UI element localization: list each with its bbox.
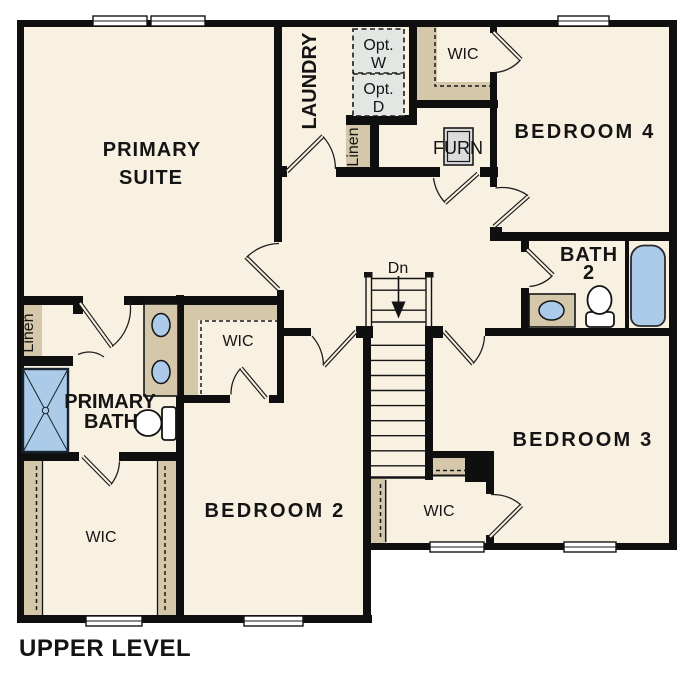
svg-text:WIC: WIC [85,529,116,546]
svg-text:LAUNDRY: LAUNDRY [299,32,321,130]
svg-text:BEDROOM 4: BEDROOM 4 [515,121,656,143]
svg-text:WIC: WIC [222,333,253,350]
svg-text:PRIMARY: PRIMARY [103,139,201,161]
svg-text:WIC: WIC [447,46,478,63]
svg-text:D: D [373,99,385,116]
svg-text:Dn: Dn [388,260,408,277]
svg-text:Linen: Linen [20,313,37,352]
svg-text:BEDROOM 3: BEDROOM 3 [513,429,654,451]
svg-text:SUITE: SUITE [119,167,183,189]
svg-text:UPPER LEVEL: UPPER LEVEL [19,635,191,662]
svg-text:Linen: Linen [345,127,362,166]
svg-text:W: W [371,55,387,72]
svg-text:BATH: BATH [84,411,138,433]
svg-text:FURN: FURN [433,138,483,158]
svg-text:BEDROOM 2: BEDROOM 2 [205,500,346,522]
svg-text:Opt.: Opt. [363,37,393,54]
svg-text:2: 2 [583,262,595,284]
svg-text:WIC: WIC [423,503,454,520]
svg-text:Opt.: Opt. [363,81,393,98]
svg-text:PRIMARY: PRIMARY [64,391,156,413]
